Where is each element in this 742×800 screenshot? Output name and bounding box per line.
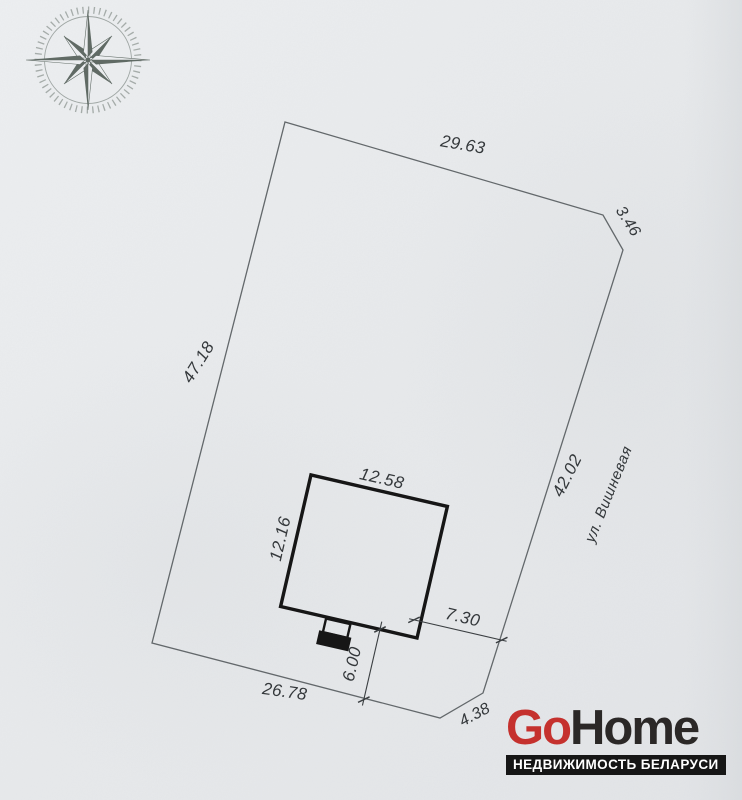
logo-go-text: Go (506, 701, 570, 755)
logo-home-text: Home (570, 701, 698, 755)
gohome-wordmark: GoHome (506, 703, 726, 754)
plan-drawing: 29.63 3.46 42.02 ул. Вишневая 47.18 26.7… (0, 0, 742, 800)
scan-edge-shadow (0, 0, 742, 800)
site-plan-scan: 29.63 3.46 42.02 ул. Вишневая 47.18 26.7… (0, 0, 742, 800)
logo-tagline-bar: НЕДВИЖИМОСТЬ БЕЛАРУСИ (506, 755, 726, 775)
gohome-logo: GoHome НЕДВИЖИМОСТЬ БЕЛАРУСИ (506, 703, 726, 775)
